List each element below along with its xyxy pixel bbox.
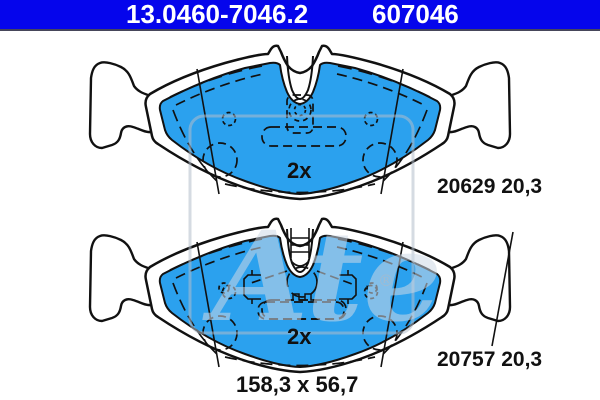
- catalog-number: 13.0460-7046.2: [126, 0, 308, 29]
- wva-thickness-label-top: 20629 20,3: [437, 175, 542, 198]
- quantity-label-top: 2x: [287, 158, 312, 183]
- dimensions-label: 158,3 x 56,7: [236, 372, 358, 397]
- technical-drawing: Ate ® 2x 2x 20629 20,3 20757 20,3 158,3 …: [0, 0, 600, 400]
- watermark-brand-script: Ate: [202, 205, 442, 350]
- watermark-registered-icon: ®: [378, 271, 394, 290]
- wva-thickness-label-bottom: 20757 20,3: [437, 348, 542, 371]
- oe-number: 607046: [372, 0, 459, 29]
- header-bar: 13.0460-7046.2 607046: [0, 0, 600, 31]
- catalog-page: Ate ® 2x 2x 20629 20,3 20757 20,3 158,3 …: [0, 0, 600, 400]
- quantity-label-bottom: 2x: [287, 324, 312, 349]
